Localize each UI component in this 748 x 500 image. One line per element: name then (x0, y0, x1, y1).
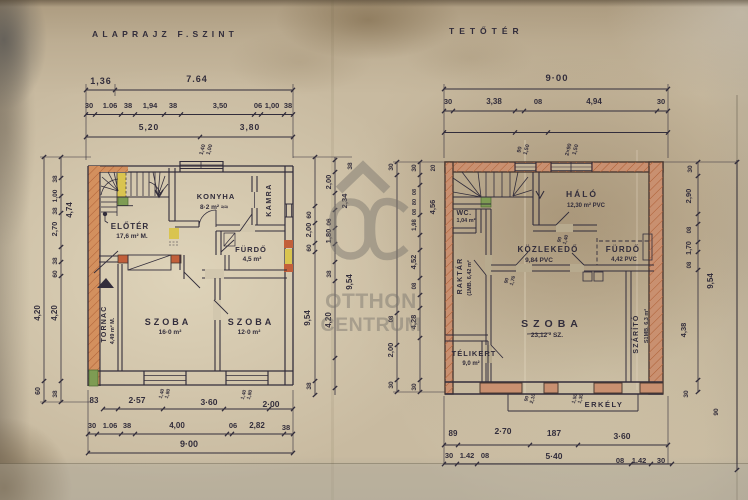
svg-text:1,00: 1,00 (206, 144, 215, 156)
svg-text:9·00: 9·00 (545, 73, 568, 84)
svg-text:38: 38 (306, 382, 313, 390)
svg-text:9,0 m²: 9,0 m² (462, 360, 479, 367)
svg-text:9,54: 9,54 (345, 274, 354, 290)
svg-text:4,94: 4,94 (586, 97, 602, 106)
svg-text:2,70: 2,70 (50, 222, 59, 237)
svg-text:08: 08 (412, 282, 418, 289)
svg-text:1,94: 1,94 (143, 101, 158, 110)
svg-text:08: 08 (412, 209, 418, 215)
svg-text:38: 38 (282, 423, 290, 432)
svg-text:OTTHON: OTTHON (325, 290, 417, 313)
svg-text:5,20: 5,20 (139, 122, 160, 132)
svg-text:1.42: 1.42 (460, 451, 475, 460)
svg-text:83: 83 (90, 396, 99, 405)
svg-text:90: 90 (713, 408, 720, 416)
svg-text:1,80: 1,80 (246, 389, 254, 400)
svg-text:2·57: 2·57 (128, 395, 145, 405)
svg-text:ELŐTÉR: ELŐTÉR (111, 222, 149, 231)
svg-text:KÖZLEKEDŐ: KÖZLEKEDŐ (517, 245, 578, 254)
svg-text:17,6 m² M.: 17,6 m² M. (116, 233, 148, 240)
svg-text:1,50: 1,50 (523, 144, 532, 156)
svg-text:187: 187 (547, 428, 561, 438)
svg-text:TORNÁC: TORNÁC (99, 305, 108, 342)
svg-text:SZOBA: SZOBA (145, 317, 192, 327)
svg-text:3·60: 3·60 (613, 431, 630, 441)
svg-text:9,54: 9,54 (303, 310, 312, 326)
svg-text:38: 38 (284, 101, 292, 110)
svg-text:1,36: 1,36 (90, 76, 112, 86)
svg-text:4,00: 4,00 (169, 421, 185, 430)
svg-text:3,38: 3,38 (486, 97, 502, 106)
svg-text:KONYHA: KONYHA (197, 192, 236, 201)
svg-text:2,90: 2,90 (684, 189, 693, 204)
svg-text:1,00: 1,00 (265, 101, 280, 110)
svg-text:S1MB. 6,3 m²: S1MB. 6,3 m² (643, 309, 650, 343)
svg-text:3,80: 3,80 (240, 122, 261, 132)
svg-text:FÜRDŐ: FÜRDŐ (606, 245, 640, 254)
svg-text:FÜRDŐ: FÜRDŐ (235, 245, 267, 254)
svg-text:06: 06 (254, 101, 262, 110)
svg-text:4,49 m² M.: 4,49 m² M. (109, 317, 116, 344)
svg-text:ALAPRAJZ F.SZINT: ALAPRAJZ F.SZINT (92, 29, 238, 39)
svg-text:4,5 m²: 4,5 m² (243, 256, 263, 263)
svg-text:20: 20 (431, 164, 437, 171)
svg-text:16·0 m²: 16·0 m² (159, 329, 183, 336)
svg-text:4,74: 4,74 (65, 202, 74, 218)
svg-text:38: 38 (52, 175, 59, 183)
svg-text:RAKTÁR: RAKTÁR (455, 258, 464, 295)
svg-text:08: 08 (412, 189, 418, 195)
svg-text:1,50: 1,50 (572, 144, 581, 156)
svg-text:06: 06 (229, 421, 237, 430)
svg-text:2,82: 2,82 (249, 421, 265, 430)
svg-text:2·70: 2·70 (494, 426, 511, 436)
svg-text:4,20: 4,20 (50, 305, 59, 321)
svg-text:8·2 m² ≈≈: 8·2 m² ≈≈ (200, 204, 229, 211)
svg-text:(1MB. 6,42 m²: (1MB. 6,42 m² (466, 260, 473, 296)
svg-text:TETŐTÉR: TETŐTÉR (449, 25, 524, 36)
svg-text:2,00: 2,00 (304, 223, 313, 238)
svg-text:12·0 m²: 12·0 m² (238, 329, 262, 336)
svg-text:4,52: 4,52 (409, 255, 418, 270)
svg-text:38: 38 (52, 390, 59, 398)
svg-text:30: 30 (411, 164, 418, 172)
svg-text:3·60: 3·60 (200, 397, 217, 407)
svg-text:80: 80 (412, 199, 418, 205)
svg-text:4,56: 4,56 (428, 200, 437, 215)
svg-text:1,00: 1,00 (52, 189, 59, 202)
svg-text:38: 38 (326, 270, 333, 278)
svg-text:1,70: 1,70 (686, 241, 693, 255)
svg-text:08: 08 (534, 97, 542, 106)
svg-text:3,50: 3,50 (213, 101, 228, 110)
svg-text:1.06: 1.06 (103, 421, 118, 430)
svg-text:30: 30 (411, 383, 418, 391)
svg-text:TÉLIKERT: TÉLIKERT (452, 349, 497, 358)
svg-text:89: 89 (449, 429, 458, 438)
svg-text:1,04 m²: 1,04 m² (457, 217, 476, 224)
svg-text:CENTRUM: CENTRUM (321, 314, 422, 336)
svg-text:30: 30 (683, 390, 690, 398)
svg-text:30: 30 (687, 165, 694, 173)
svg-text:ERKÉLY: ERKÉLY (585, 400, 624, 409)
svg-text:SZOBA: SZOBA (521, 318, 583, 330)
svg-text:9,54: 9,54 (706, 273, 715, 289)
svg-text:4,38: 4,38 (679, 323, 688, 338)
svg-text:4,20: 4,20 (33, 305, 42, 321)
svg-text:1.06: 1.06 (103, 101, 118, 110)
svg-text:5·40: 5·40 (545, 451, 562, 461)
svg-text:30: 30 (657, 97, 665, 106)
svg-text:12,30 m² PVC: 12,30 m² PVC (567, 202, 606, 209)
svg-text:9,84 PVC: 9,84 PVC (525, 257, 553, 264)
svg-text:WC.: WC. (456, 210, 471, 217)
svg-text:60: 60 (306, 244, 313, 252)
svg-text:2,00: 2,00 (324, 175, 333, 190)
svg-text:2,00: 2,00 (386, 343, 395, 358)
svg-text:1,76: 1,76 (509, 275, 517, 286)
svg-text:30: 30 (444, 97, 452, 106)
svg-text:SZOBA: SZOBA (228, 317, 275, 327)
svg-text:1,40: 1,40 (562, 234, 570, 245)
svg-text:2,10: 2,10 (529, 393, 537, 404)
svg-text:38: 38 (123, 421, 131, 430)
svg-text:08: 08 (687, 261, 693, 268)
svg-text:30: 30 (88, 421, 96, 430)
svg-text:30: 30 (388, 381, 395, 389)
svg-text:38: 38 (52, 257, 59, 265)
svg-text:08: 08 (687, 226, 693, 233)
svg-text:38: 38 (124, 101, 132, 110)
svg-text:30: 30 (388, 163, 395, 171)
svg-text:HÁLÓ: HÁLÓ (566, 188, 598, 199)
svg-text:1,80: 1,80 (164, 388, 172, 399)
svg-text:38: 38 (52, 207, 59, 215)
svg-text:KAMRA: KAMRA (266, 183, 273, 217)
svg-text:SZÁRÍTÓ: SZÁRÍTÓ (631, 314, 640, 353)
svg-text:60: 60 (52, 270, 59, 278)
svg-text:7.64: 7.64 (186, 74, 208, 84)
svg-text:38: 38 (347, 162, 354, 170)
svg-text:38: 38 (169, 101, 177, 110)
svg-text:9·00: 9·00 (180, 439, 198, 449)
svg-text:4,42 PVC: 4,42 PVC (611, 257, 637, 263)
svg-text:08: 08 (481, 451, 489, 460)
svg-text:1,98: 1,98 (412, 219, 418, 231)
svg-text:60: 60 (306, 211, 313, 219)
svg-text:30: 30 (85, 101, 93, 110)
svg-text:30: 30 (445, 451, 453, 460)
svg-text:60: 60 (35, 387, 42, 395)
